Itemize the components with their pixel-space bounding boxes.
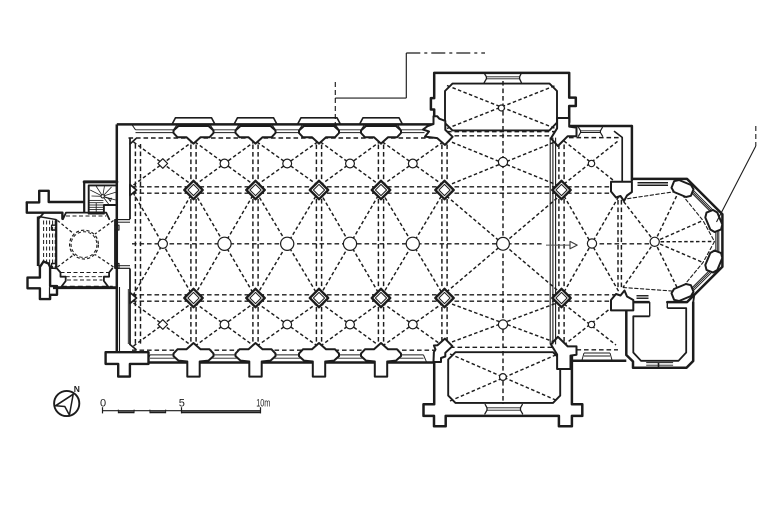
svg-text:10m: 10m	[256, 398, 270, 410]
svg-text:N: N	[74, 384, 80, 394]
svg-text:0: 0	[100, 398, 106, 410]
svg-text:5: 5	[179, 398, 185, 410]
